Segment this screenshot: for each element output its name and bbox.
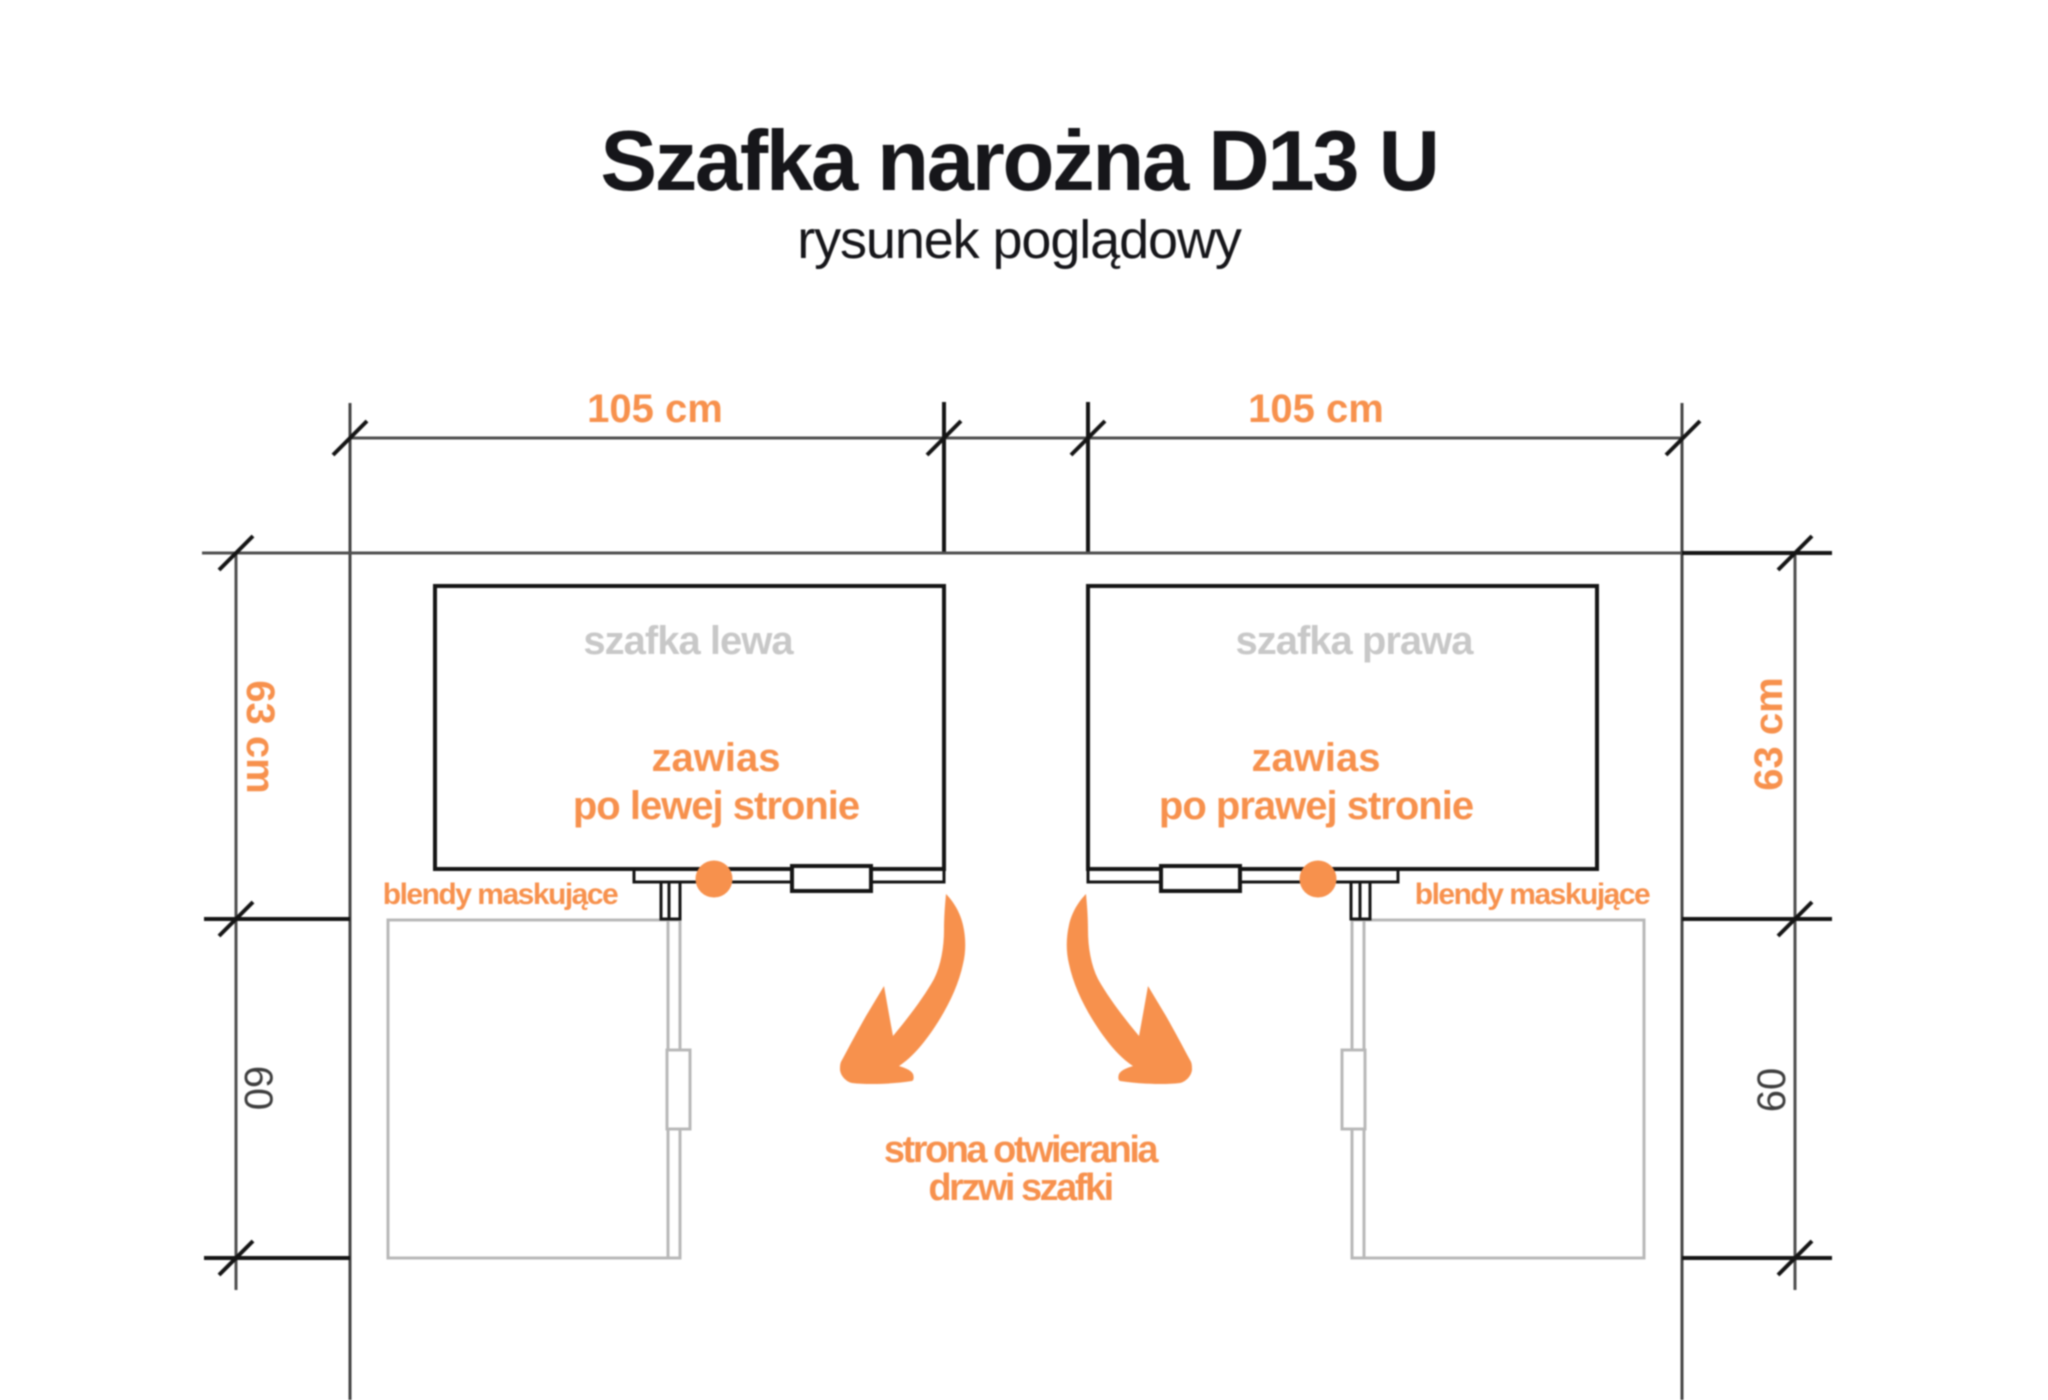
svg-text:blendy maskujące: blendy maskujące: [1415, 878, 1650, 911]
svg-text:po prawej stronie: po prawej stronie: [1159, 784, 1473, 828]
svg-text:zawias: zawias: [1252, 736, 1381, 780]
svg-text:szafka prawa: szafka prawa: [1235, 619, 1474, 663]
svg-text:strona otwierania: strona otwierania: [884, 1129, 1159, 1171]
svg-text:drzwi szafki: drzwi szafki: [928, 1167, 1111, 1209]
svg-text:60: 60: [236, 1066, 280, 1111]
svg-text:blendy maskujące: blendy maskujące: [383, 878, 618, 911]
svg-text:63 cm: 63 cm: [238, 680, 282, 793]
svg-text:szafka lewa: szafka lewa: [583, 619, 794, 663]
svg-text:po lewej stronie: po lewej stronie: [573, 784, 859, 828]
svg-text:63 cm: 63 cm: [1747, 677, 1791, 790]
svg-text:105 cm: 105 cm: [1248, 387, 1384, 431]
svg-text:105 cm: 105 cm: [587, 387, 723, 431]
svg-text:rysunek poglądowy: rysunek poglądowy: [797, 210, 1242, 270]
svg-text:Szafka narożna D13 U: Szafka narożna D13 U: [600, 114, 1437, 209]
svg-text:60: 60: [1750, 1068, 1794, 1113]
svg-text:zawias: zawias: [652, 736, 781, 780]
